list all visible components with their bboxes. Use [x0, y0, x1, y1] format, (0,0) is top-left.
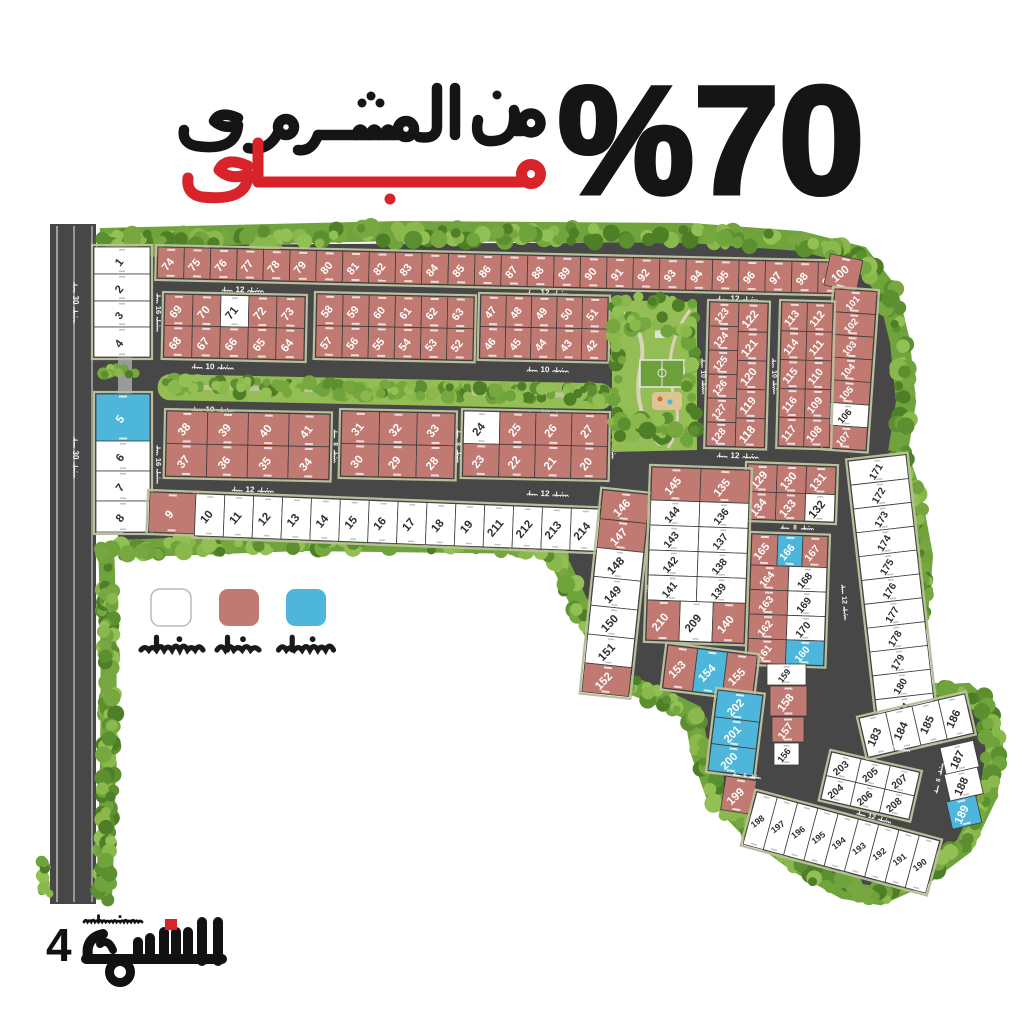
svg-text:8: 8: [332, 442, 339, 446]
svg-text:30: 30: [71, 296, 80, 305]
svg-text:10: 10: [770, 370, 777, 378]
svg-text:10: 10: [699, 370, 706, 378]
svg-text:10: 10: [886, 744, 895, 752]
svg-text:10: 10: [205, 362, 215, 371]
svg-text:30: 30: [71, 451, 80, 460]
svg-text:10: 10: [540, 365, 550, 374]
svg-text:8: 8: [793, 524, 797, 531]
svg-text:12: 12: [840, 596, 848, 604]
svg-text:%70: %70: [558, 55, 864, 226]
svg-text:12: 12: [730, 451, 740, 460]
svg-text:16: 16: [154, 458, 163, 466]
svg-text:12: 12: [540, 288, 550, 297]
svg-text:8: 8: [455, 442, 462, 446]
svg-text:4: 4: [46, 919, 72, 971]
svg-text:12: 12: [540, 489, 550, 498]
